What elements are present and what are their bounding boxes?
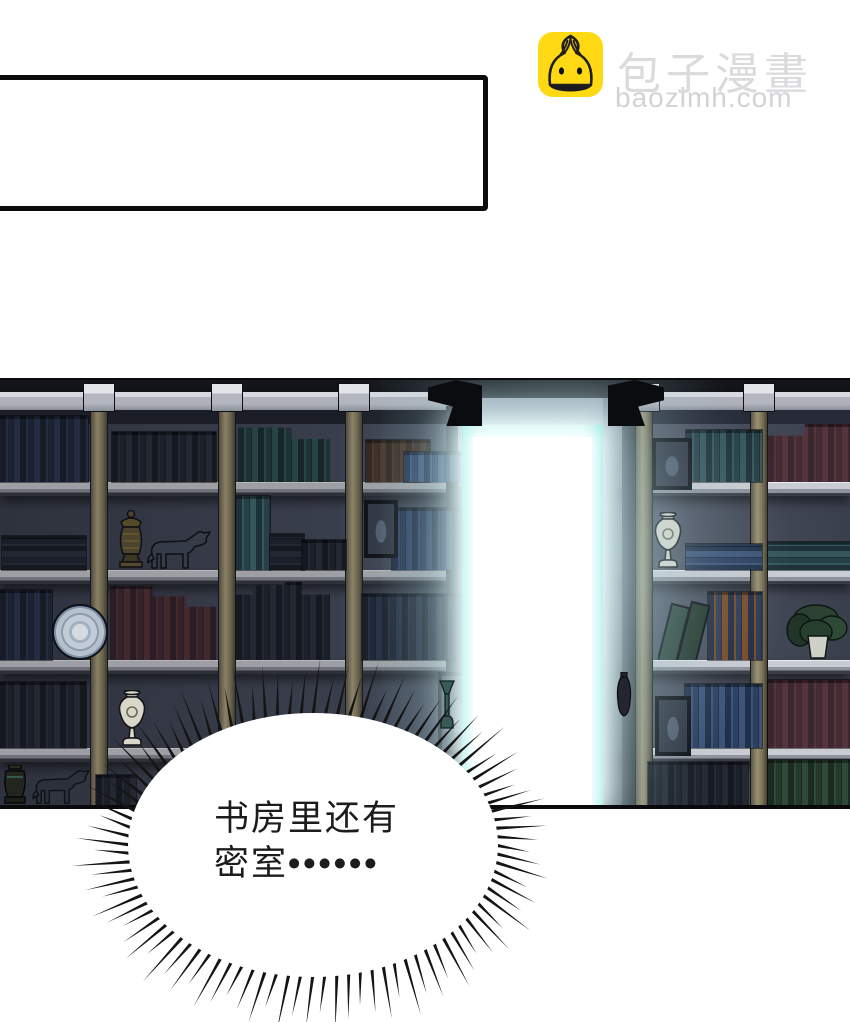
site-domain: baozimh.com <box>615 82 793 114</box>
silhouette-vase <box>614 672 634 718</box>
leaning-books <box>658 600 710 660</box>
pillar-capital <box>211 383 243 412</box>
bubble-line-2: 密室•••••• <box>214 841 399 886</box>
shelf-ornament <box>2 765 28 805</box>
pillar-capital <box>338 383 370 412</box>
book-row <box>768 542 850 570</box>
book-row <box>0 590 52 660</box>
shelf-pillar <box>635 406 653 805</box>
picture-frame <box>655 696 691 756</box>
shelf-board <box>622 660 850 674</box>
comic-page: 包子漫畫 baozimh.com <box>0 0 850 1022</box>
book-row <box>708 592 762 660</box>
shelf-ornament <box>146 530 212 570</box>
book-row <box>302 540 346 570</box>
book-row <box>392 508 460 570</box>
ellipsis-dots: •••••• <box>288 844 380 883</box>
speech-bubble-text: 书房里还有 密室•••••• <box>214 796 399 886</box>
shelf-side-panel <box>622 406 635 805</box>
book-row <box>768 760 850 805</box>
book-row <box>768 680 850 748</box>
book-row <box>648 762 748 805</box>
book-row <box>685 684 762 748</box>
book-row <box>236 496 270 570</box>
cornice-shadow <box>622 410 850 424</box>
shelf-board <box>622 570 850 584</box>
book-row <box>2 536 86 570</box>
pillar-capital <box>83 383 115 412</box>
shelf-ornament <box>650 512 686 570</box>
pillar-capital <box>743 383 775 412</box>
picture-frame <box>652 438 692 490</box>
shelf-ornament <box>114 510 148 570</box>
book-row <box>686 430 762 482</box>
shelf-ornament <box>786 602 850 660</box>
bubble-line-1: 书房里还有 <box>214 796 399 841</box>
empty-caption-box <box>0 75 488 211</box>
picture-frame <box>364 500 398 558</box>
book-row <box>112 432 216 482</box>
book-row <box>270 534 304 570</box>
book-row <box>686 544 762 570</box>
book-row <box>0 416 88 482</box>
book-row <box>404 452 460 482</box>
steamed-bun-icon <box>538 32 603 97</box>
